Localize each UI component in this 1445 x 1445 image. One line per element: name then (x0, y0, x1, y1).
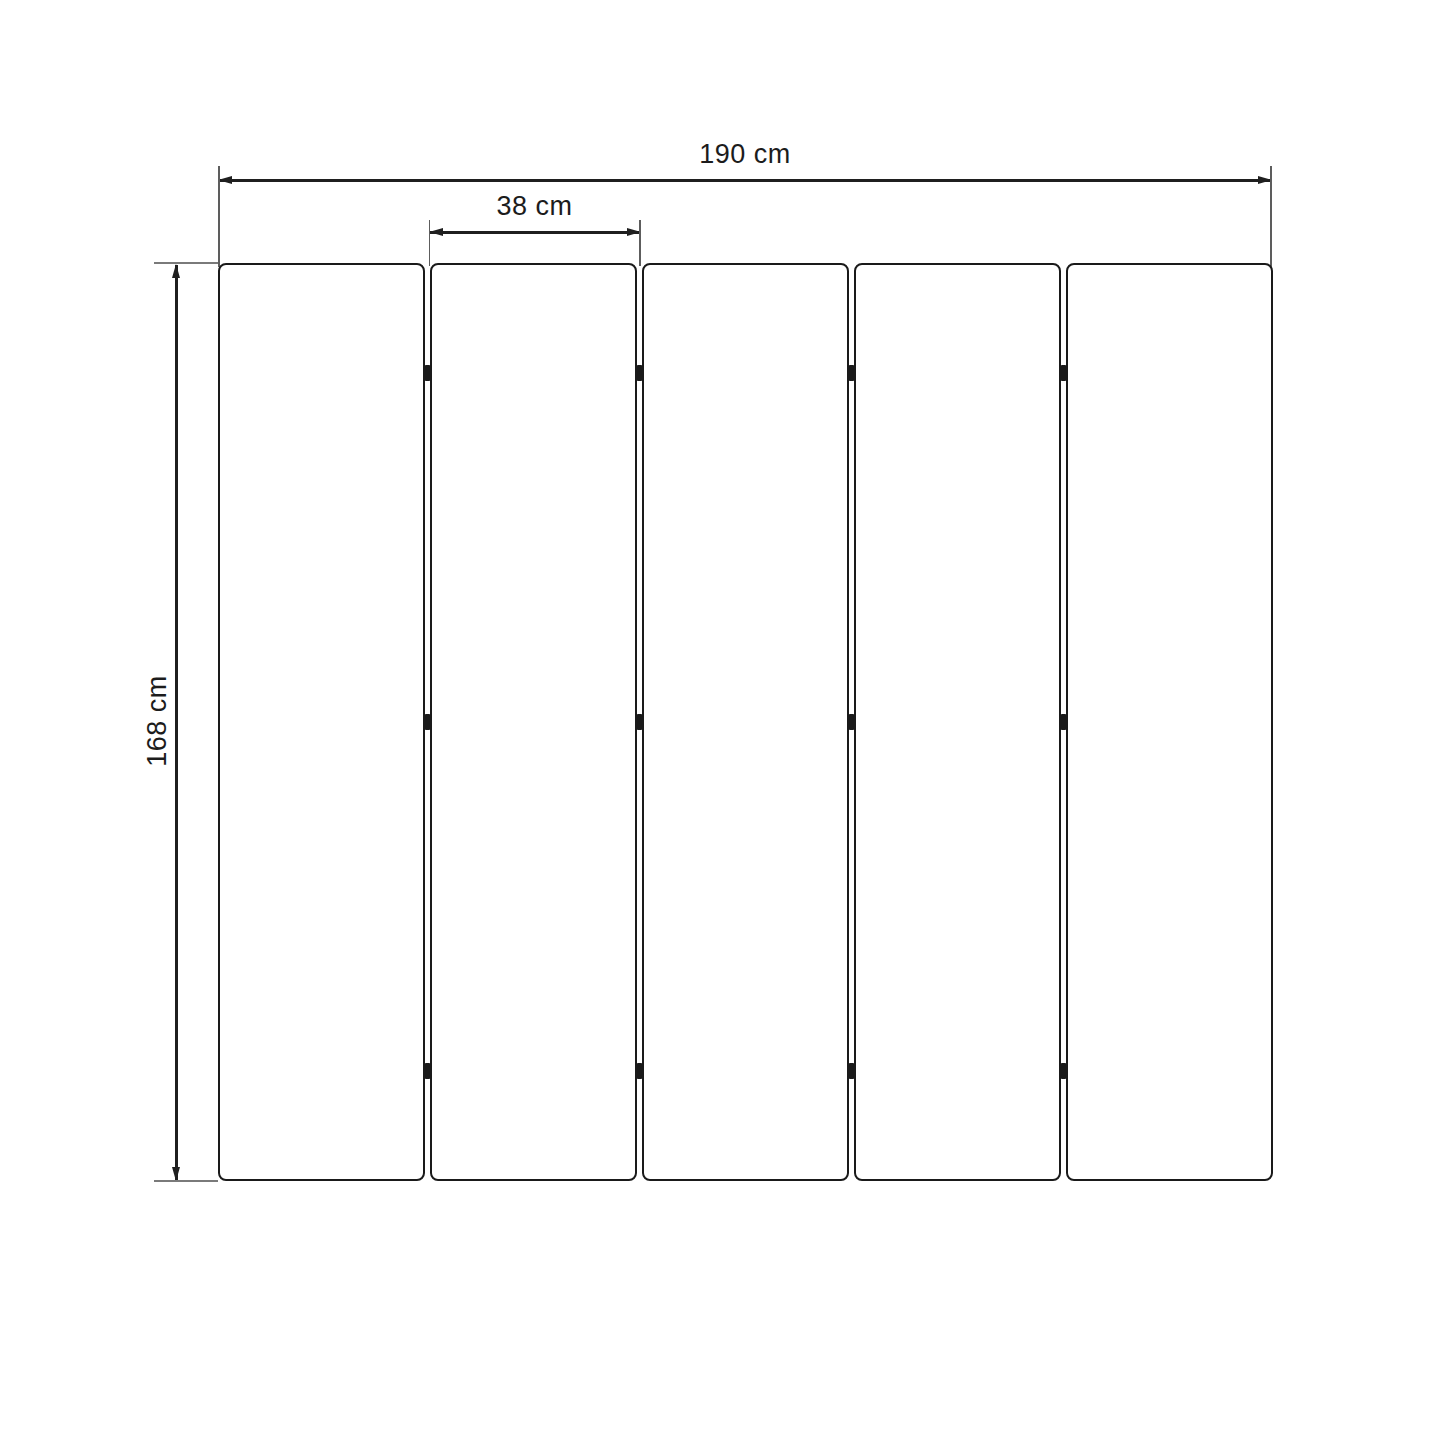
extension-line-total-width-right (1270, 166, 1272, 267)
hinge-connector (1060, 714, 1067, 730)
dimension-label-height: 168 cm (140, 661, 174, 781)
panel-4 (854, 263, 1061, 1181)
panel-2 (430, 263, 637, 1181)
extension-line-height-top (154, 262, 218, 264)
dimension-line-height (175, 265, 178, 1180)
hinge-connector (848, 365, 855, 381)
hinge-connector (848, 1063, 855, 1079)
hinge-connector (424, 365, 431, 381)
hinge-connector (848, 714, 855, 730)
panel-row (218, 263, 1273, 1181)
hinge-connector (1060, 1063, 1067, 1079)
panel-3 (642, 263, 849, 1181)
panel-5 (1066, 263, 1273, 1181)
diagram-canvas: 190 cm 38 cm 168 cm (0, 0, 1445, 1445)
extension-line-panel-width-left (429, 220, 431, 266)
extension-line-total-width-left (218, 166, 220, 267)
dimension-line-total-width (219, 179, 1271, 182)
dimension-line-panel-width (430, 231, 640, 234)
hinge-connector (1060, 365, 1067, 381)
hinge-connector (636, 1063, 643, 1079)
hinge-connector (636, 714, 643, 730)
dimension-label-panel-width: 38 cm (429, 189, 640, 223)
hinge-connector (636, 365, 643, 381)
hinge-connector (424, 1063, 431, 1079)
extension-line-height-bottom (154, 1180, 218, 1182)
dimension-label-total-width: 190 cm (219, 137, 1271, 171)
hinge-connector (424, 714, 431, 730)
panel-1 (218, 263, 425, 1181)
extension-line-panel-width-right (639, 220, 641, 266)
